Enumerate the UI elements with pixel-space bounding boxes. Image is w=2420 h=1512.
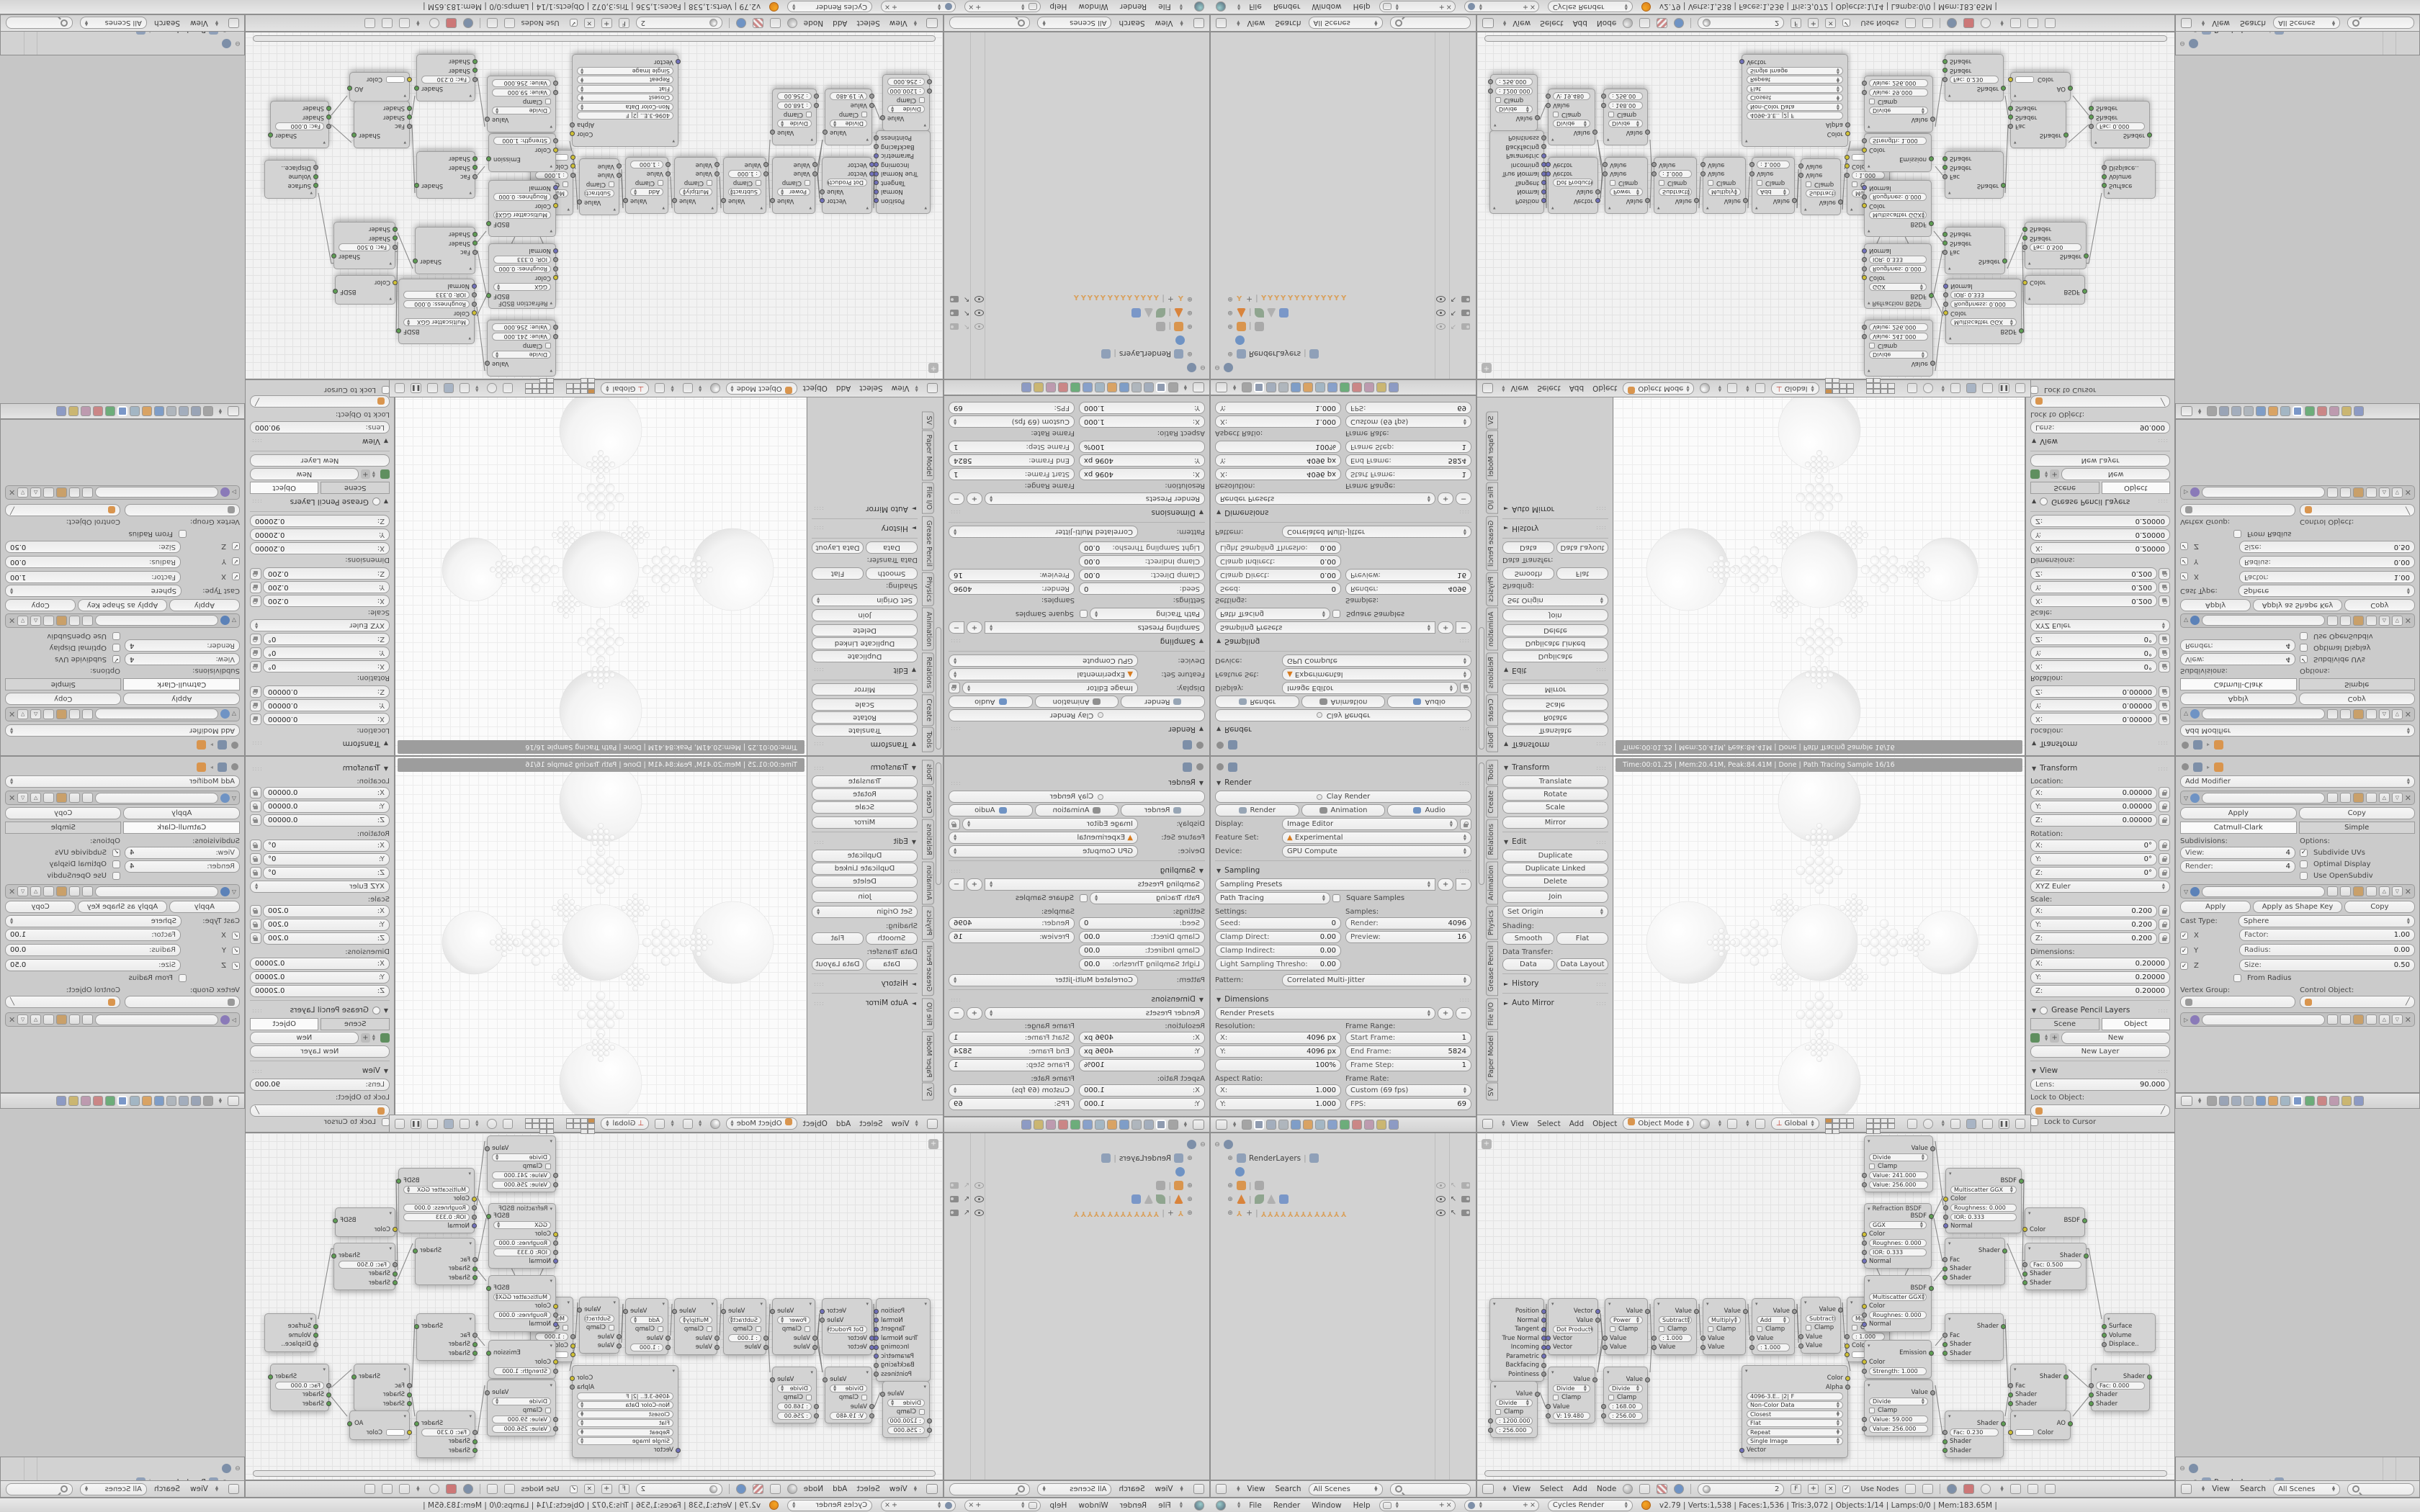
node-refraction-bsdf[interactable]: ▾Refraction BSDFBSDFGGXColorRoughnes: 0.…	[1864, 243, 1932, 309]
menu-item-view[interactable]: View	[892, 384, 910, 393]
node-refraction-bsdf[interactable]: ▾Refraction BSDFBSDFGGXColorRoughnes: 0.…	[488, 243, 556, 309]
properties-tab-material-icon[interactable]	[2317, 406, 2327, 416]
clamp-checkbox[interactable]	[658, 180, 663, 186]
outliner-world-row[interactable]	[1214, 333, 1473, 347]
tool-shelf-tab-tools[interactable]: Tools	[922, 727, 934, 752]
outliner-object-row[interactable]: ⊕ | ↖	[1214, 1179, 1473, 1192]
section-history[interactable]: ►History::::	[1504, 977, 1607, 990]
properties-tab-constraints-icon[interactable]	[130, 406, 140, 416]
shader-type-icon[interactable]	[787, 18, 797, 28]
node-math-multiply[interactable]: ▾ValueMultiplyClampValueValue	[674, 158, 717, 215]
axis-y-checkbox[interactable]: ✓	[2180, 557, 2188, 565]
copy-button[interactable]: Copy	[5, 901, 76, 913]
node-dropdown[interactable]: Single Image	[1747, 67, 1843, 75]
world-icon[interactable]	[736, 1484, 746, 1494]
clamp-checkbox[interactable]	[545, 1408, 551, 1413]
outliner-display-dropdown[interactable]: All Scenes	[1037, 17, 1111, 30]
fractal-sphere-object[interactable]	[1613, 397, 2025, 755]
eye-toggle-icon[interactable]	[69, 709, 80, 719]
screen-icon[interactable]	[395, 384, 405, 394]
render-visibility-icon[interactable]	[1461, 1210, 1470, 1216]
empty-object-icon[interactable]: Y	[1327, 295, 1332, 303]
properties-tab-scene-icon[interactable]	[166, 406, 176, 416]
outliner-editor-icon[interactable]	[228, 1484, 239, 1494]
node-mix-shader[interactable]: ▾ShaderFac: 0.000ShaderShader	[270, 1364, 329, 1411]
properties-tab-particles-icon[interactable]	[1376, 382, 1386, 392]
node-math-subtract[interactable]: ▾ValueSubtractClampValueValue	[1801, 159, 1841, 216]
node-editor-canvas[interactable]: ▾PositionNormalTangentTrue NormalIncomin…	[1477, 1133, 2174, 1480]
empty-object-icon[interactable]: Y	[1288, 1210, 1293, 1218]
node-geometry[interactable]: ▾PositionNormalTangentTrue NormalIncomin…	[876, 1298, 931, 1382]
blender-menu-icon[interactable]	[1216, 2, 1226, 12]
outliner-renderlayers-row[interactable]: ⊕ RenderLayers|	[1214, 347, 1473, 361]
gpencil-new-button[interactable]: New	[2061, 1032, 2170, 1044]
delete-button[interactable]: Delete	[1502, 876, 1608, 888]
lock-icon[interactable]	[250, 905, 261, 917]
menu-item-file[interactable]: File	[1249, 1501, 1262, 1510]
selectable-icon[interactable]: ↖	[964, 1209, 969, 1217]
value-field[interactable]: End Frame:5824	[1345, 1045, 1471, 1058]
viewport-3d[interactable]: Time:00:01.25 | Mem:20.41M, Peak:84.41M …	[1613, 756, 2025, 1133]
lock-icon[interactable]	[250, 919, 261, 930]
node-math-divide[interactable]: ▾ValueDivideClamp: 168.00: 256.00	[1603, 89, 1648, 146]
shade-smooth-button[interactable]: Smooth	[866, 932, 918, 945]
tool-shelf-tab-grease-pencil[interactable]: Grease Pencil	[922, 516, 934, 571]
scrollbar[interactable]	[936, 627, 941, 750]
editmode-toggle-icon[interactable]	[2353, 886, 2364, 896]
square-samples-checkbox[interactable]	[1080, 610, 1088, 618]
viewport-canvas[interactable]	[395, 380, 807, 755]
value-field[interactable]: Y:0°	[263, 853, 390, 865]
screen-icon[interactable]	[2015, 1119, 2025, 1129]
lock-to-object-field[interactable]: ╱	[250, 1104, 390, 1117]
node-math-divide[interactable]: ▾ValueDivideClamp: 168.00: 256.00	[772, 1367, 817, 1423]
node-dropdown[interactable]: Subtract	[584, 189, 614, 197]
clamp-checkbox[interactable]	[861, 112, 867, 117]
shade-flat-button[interactable]: Flat	[1556, 932, 1608, 945]
properties-tab-world-icon[interactable]	[1119, 1120, 1129, 1130]
outliner-renderlayers-row[interactable]: ⊕ RenderLayers|	[947, 347, 1206, 361]
texture-icon[interactable]	[753, 1484, 763, 1494]
add-icon[interactable]: +	[2050, 1033, 2059, 1043]
value-field[interactable]: X:0°	[2030, 660, 2157, 672]
layers-widget-secondary[interactable]	[1866, 383, 1901, 395]
unlink-datablock-icon[interactable]: ×	[1825, 1484, 1836, 1494]
world-icon[interactable]	[736, 18, 746, 28]
menu-item-select[interactable]: Select	[1537, 384, 1560, 393]
node-dropdown[interactable]: Multiscatter GGX	[1869, 211, 1927, 219]
section-grease-pencil-layers[interactable]: ▼Grease Pencil Layers::::	[251, 495, 388, 508]
properties-tab-scene-icon[interactable]	[166, 1096, 176, 1106]
clay-render-button[interactable]: Clay Render	[949, 709, 1205, 721]
clamp-checkbox[interactable]	[1869, 99, 1875, 104]
delete-modifier-icon[interactable]: ✕	[9, 710, 15, 719]
set-origin-dropdown[interactable]: Set Origin	[812, 594, 918, 606]
node-editor[interactable]: ▾PositionNormalTangentTrue NormalIncomin…	[1476, 32, 2175, 379]
properties-tab-editor-menu-icon[interactable]	[203, 406, 213, 416]
value-field[interactable]: Z:0.200	[263, 567, 390, 580]
backdrop-icon[interactable]	[446, 1484, 457, 1494]
color-swatch[interactable]	[2015, 76, 2034, 83]
add-modifier-dropdown[interactable]: Add Modifier	[2180, 775, 2415, 788]
fake-user-button[interactable]: F	[619, 1484, 629, 1494]
layers-widget[interactable]	[560, 1118, 595, 1130]
menu-item-window[interactable]: Window	[1078, 1501, 1108, 1510]
cast-type-dropdown[interactable]: Sphere	[2238, 915, 2415, 927]
pin-icon[interactable]	[2182, 763, 2189, 770]
node-dropdown[interactable]: Divide	[1553, 1385, 1590, 1392]
node-value-field[interactable]: Fac: 0.000	[275, 122, 324, 130]
properties-tab-material-icon[interactable]	[93, 406, 103, 416]
eyedropper-icon[interactable]: ╱	[255, 1105, 259, 1116]
join-button[interactable]: Join	[1502, 891, 1608, 903]
node-math-subtract[interactable]: ▾ValueSubtractClampValueValue	[579, 159, 619, 216]
value-field[interactable]: Seed:0	[1215, 917, 1341, 930]
menu-item-view[interactable]: View	[889, 1485, 907, 1493]
square-samples-checkbox[interactable]	[1332, 610, 1340, 618]
node-glossy-bsdf[interactable]: ▾BSDFMultiscatter GGXColorRoughnes: 0.00…	[1864, 1275, 1932, 1332]
node-dropdown[interactable]: Non-Color Data	[1747, 103, 1843, 111]
value-field[interactable]: X:0.200	[263, 905, 390, 917]
node-dropdown[interactable]: Dot Product	[827, 179, 867, 186]
properties-tab-world-icon[interactable]	[1291, 1120, 1301, 1130]
node-dropdown[interactable]: GGX	[1869, 283, 1927, 291]
add-preset-button[interactable]: +	[1438, 878, 1453, 891]
node-geometry[interactable]: ▾PositionNormalTangentTrue NormalIncomin…	[876, 130, 931, 214]
eye-toggle-icon[interactable]	[2340, 616, 2351, 626]
render-visibility-icon[interactable]	[1461, 310, 1470, 316]
fake-user-button[interactable]: F	[619, 18, 629, 28]
clamp-checkbox[interactable]	[1608, 1395, 1614, 1400]
world-background-icon[interactable]	[1947, 1484, 1957, 1494]
section-auto-mirror[interactable]: ►Auto Mirror::::	[813, 996, 916, 1009]
pencil-icon[interactable]	[2030, 1033, 2040, 1043]
node-mix-shader[interactable]: ▾ShaderFacShaderShader	[1945, 151, 2004, 199]
section-render[interactable]: ▼Render::::	[950, 723, 1204, 736]
value-field[interactable]: Render:4096	[1345, 917, 1471, 930]
value-field[interactable]: End Frame:5824	[1345, 454, 1471, 467]
node-value-field[interactable]: IOR: 0.333	[493, 1248, 551, 1256]
properties-tab-modifiers-icon[interactable]	[2293, 406, 2303, 416]
move-down-icon[interactable]: ▽	[2392, 886, 2403, 896]
properties-tab-constraints-icon[interactable]	[2280, 1096, 2290, 1106]
value-field[interactable]: Lens:90.000	[250, 421, 390, 433]
node-dropdown[interactable]: Power	[1610, 1316, 1643, 1324]
apply-as-shape-key-button[interactable]: Apply as Shape Key	[78, 901, 167, 913]
copy-button[interactable]: Copy	[5, 599, 76, 611]
data-button[interactable]: Data	[866, 541, 918, 554]
empty-object-icon[interactable]: Y	[1134, 295, 1139, 303]
node-image-texture[interactable]: ▾ColorAlpha4096-3.E.. |2| FNon-Color Dat…	[1742, 55, 1848, 148]
image-file-field[interactable]: 4096-3.E.. |2| F	[1747, 112, 1843, 120]
properties-tab-object-data-icon[interactable]	[1070, 382, 1080, 392]
node-value-field[interactable]: : 1200.000	[887, 1417, 925, 1425]
proportional-edit-icon[interactable]	[1950, 1119, 1960, 1129]
section-transform[interactable]: ▼Transform::::	[1504, 761, 1607, 774]
editmode-toggle-icon[interactable]	[56, 886, 67, 896]
node-dropdown[interactable]: Divide	[1869, 351, 1928, 359]
properties-tab-particles-icon[interactable]	[68, 406, 79, 416]
outliner-display-dropdown[interactable]: All Scenes	[80, 17, 147, 30]
node-math-divide[interactable]: ▾ValueDivideClampValueV: 19.480	[825, 89, 872, 146]
clamp-checkbox[interactable]	[1806, 1325, 1811, 1331]
empty-object-icon[interactable]: Y	[1127, 1210, 1132, 1218]
empty-object-icon[interactable]: Y	[1294, 1210, 1299, 1218]
node-value-field[interactable]: Roughnes: 0.000	[1869, 265, 1927, 273]
axis-z-checkbox[interactable]: ✓	[2180, 962, 2188, 970]
section-auto-mirror[interactable]: ►Auto Mirror::::	[813, 503, 916, 516]
value-field[interactable]: Z:0.200	[2030, 567, 2157, 580]
node-emission[interactable]: ▾EmissionColorStrength: 1.000	[488, 1340, 556, 1379]
value-field[interactable]: Light Sampling Thresho:0.00	[1215, 541, 1341, 554]
gpencil-object-tab[interactable]: Object	[2102, 1018, 2171, 1030]
rotate-button[interactable]: Rotate	[812, 788, 918, 801]
image-file-field[interactable]: 4096-3.E.. |2| F	[577, 1392, 673, 1400]
add-icon[interactable]: +	[1439, 3, 1445, 11]
node-mix-shader[interactable]: ▾ShaderFacShaderShader	[1945, 227, 2005, 274]
color-swatch[interactable]	[2015, 1429, 2034, 1436]
value-field[interactable]: Seed:0	[1215, 582, 1341, 595]
properties-tab-render-layers-icon[interactable]	[1266, 382, 1276, 392]
catmull-clark-tab[interactable]: Catmull-Clark	[2180, 822, 2297, 834]
node-value-field[interactable]: : 1.000	[535, 171, 568, 179]
properties-tab-editor-menu-icon[interactable]	[1242, 1120, 1252, 1130]
node-value-field[interactable]: : 1200.000	[1495, 1417, 1533, 1425]
node-value-field[interactable]: Roughness: 0.000	[403, 1204, 470, 1212]
node-value-field[interactable]: : 1.000	[1757, 1344, 1790, 1351]
value-field[interactable]: Factor:1.00	[2239, 571, 2415, 583]
scene-field[interactable]: +×	[1464, 1500, 1539, 1511]
gpencil-scene-tab[interactable]: Scene	[321, 1018, 390, 1030]
node-editor-icon[interactable]	[1482, 1484, 1494, 1494]
node-value-field[interactable]: V: 19.480	[830, 1412, 867, 1420]
catmull-clark-tab[interactable]: Catmull-Clark	[2180, 678, 2297, 690]
node-math-divide[interactable]: ▾ValueDivideClamp: 1200.000: 256.000	[882, 1381, 930, 1438]
node-math-add[interactable]: ▾ValueAddClampValue: 1.000	[1752, 158, 1795, 215]
tool-shelf-tab-sv[interactable]: SV	[922, 1083, 934, 1101]
use-nodes-checkbox[interactable]: ✓	[570, 1485, 578, 1493]
section-edit[interactable]: ▼Edit::::	[1504, 664, 1607, 677]
lock-icon[interactable]	[503, 1119, 513, 1129]
node-mix-shader[interactable]: ▾ShaderFac: 0.230ShaderShader	[1945, 54, 2004, 102]
section-transform[interactable]: ▼Transform::::	[813, 761, 916, 774]
node-dropdown[interactable]: Flat	[1747, 85, 1843, 93]
value-field[interactable]: End Frame:5824	[949, 1045, 1075, 1058]
axis-x-checkbox[interactable]: ✓	[232, 572, 240, 580]
properties-tab-physics-icon[interactable]	[2354, 406, 2364, 416]
add-icon[interactable]: +	[361, 1033, 370, 1043]
clamp-checkbox[interactable]	[1757, 180, 1762, 186]
value-field[interactable]: Radius:0.00	[5, 944, 181, 956]
menu-item-add[interactable]: Add	[1569, 1120, 1584, 1128]
node-value-field[interactable]: Value: 256.000	[1869, 79, 1928, 87]
node-value-field[interactable]: : 168.00	[777, 1403, 812, 1410]
lock-interface-icon[interactable]	[1460, 819, 1471, 830]
value-field[interactable]: X:0.20000	[2030, 542, 2170, 554]
lock-icon[interactable]	[2159, 700, 2170, 711]
node-dropdown[interactable]: Dot Product	[827, 1326, 867, 1333]
properties-tab-render-layers-icon[interactable]	[2231, 1096, 2241, 1106]
paste-node-icon[interactable]	[364, 1484, 375, 1494]
backdrop-icon[interactable]	[1963, 18, 1974, 28]
add-icon[interactable]: +	[975, 3, 981, 11]
menu-item-add[interactable]: Add	[1573, 19, 1587, 27]
value-field[interactable]: Size:0.50	[5, 959, 181, 971]
move-down-icon[interactable]: ▽	[2392, 1014, 2403, 1025]
unlink-datablock-icon[interactable]: ×	[584, 18, 595, 28]
clamp-checkbox[interactable]	[609, 181, 614, 187]
node-dropdown[interactable]: Repeat	[1747, 1428, 1843, 1436]
value-field[interactable]: Factor:1.00	[2239, 929, 2415, 941]
menu-item-help[interactable]: Help	[1049, 1501, 1067, 1510]
node-mix-shader[interactable]: ▾ShaderFacShaderShader	[416, 1313, 475, 1361]
node-value-field[interactable]: Roughnes: 0.000	[493, 265, 551, 273]
lock-icon[interactable]	[250, 932, 261, 944]
node-value-field[interactable]: : 1.000	[728, 170, 761, 178]
texture-icon[interactable]	[1657, 1484, 1667, 1494]
render-animation-icon[interactable]	[1982, 1119, 1992, 1129]
clamp-checkbox[interactable]	[756, 1326, 761, 1332]
shader-type-icon[interactable]	[787, 1484, 797, 1494]
hide-icon[interactable]	[1436, 1196, 1446, 1202]
image-file-field[interactable]: 4096-3.E.. |2| F	[1747, 1392, 1843, 1400]
outliner-search-field[interactable]	[949, 17, 1030, 30]
control-object-field[interactable]: ╱	[5, 504, 120, 516]
node-value-field[interactable]: Roughness: 0.000	[1950, 1204, 2017, 1212]
node-value-field[interactable]: Fac: 0.000	[2096, 1382, 2145, 1390]
properties-tab-constraints-icon[interactable]	[130, 1096, 140, 1106]
duplicate-button[interactable]: Duplicate	[1502, 650, 1608, 662]
fake-user-button[interactable]: F	[1791, 18, 1801, 28]
data-layout-button[interactable]: Data Layout	[1556, 958, 1608, 971]
eye-toggle-icon[interactable]	[69, 886, 80, 896]
display-dropdown[interactable]: Image Editor	[962, 818, 1138, 830]
value-field[interactable]: Y:0.00000	[263, 699, 390, 711]
menu-item-search[interactable]: Search	[1275, 1485, 1301, 1493]
lock-icon[interactable]	[2159, 932, 2170, 944]
color-swatch[interactable]	[386, 76, 405, 83]
node-glass-bsdf[interactable]: ▾BSDFMultiscatter GGXColorRoughness: 0.0…	[1945, 1168, 2022, 1233]
layers-widget-secondary[interactable]	[519, 1118, 554, 1130]
menu-item-view[interactable]: View	[1247, 19, 1265, 27]
layers-widget-secondary[interactable]	[1866, 1118, 1901, 1130]
cast-type-dropdown[interactable]: Sphere	[5, 585, 181, 597]
node-math-divide[interactable]: ▾ValueDivideClampValue: 241.000Value: 25…	[487, 1135, 556, 1192]
eyedropper-icon[interactable]: ╱	[2161, 396, 2165, 407]
properties-tab-render-camera-icon[interactable]	[2219, 406, 2229, 416]
node-value-field[interactable]: V: 19.480	[830, 92, 867, 100]
selectable-icon[interactable]: ↖	[964, 295, 969, 303]
move-up-icon[interactable]: △	[30, 886, 41, 896]
node-dropdown[interactable]: Divide	[1608, 1385, 1643, 1392]
modifier-name-field[interactable]	[2202, 886, 2325, 897]
empty-object-icon[interactable]: Y	[1141, 1210, 1146, 1218]
node-dropdown[interactable]: GGX	[493, 1221, 551, 1229]
node-math-divide[interactable]: ▾ValueDivideClamp: 168.00: 256.00	[1603, 1367, 1648, 1423]
menu-item-select[interactable]: Select	[1540, 1485, 1563, 1493]
audio-button[interactable]: Audio	[949, 696, 1033, 708]
set-origin-dropdown[interactable]: Set Origin	[1502, 594, 1608, 606]
node-value-field[interactable]: Roughnes: 0.000	[493, 1311, 551, 1319]
node-geometry[interactable]: ▾PositionNormalTangentTrue NormalIncomin…	[1489, 1298, 1544, 1382]
node-value-field[interactable]: Strength: 1.000	[493, 1367, 551, 1375]
value-field[interactable]: 100%	[1215, 441, 1341, 453]
clamp-checkbox[interactable]	[1553, 1395, 1559, 1400]
move-down-icon[interactable]: ▽	[17, 1014, 28, 1025]
value-field[interactable]: X:4096 px	[1215, 1032, 1341, 1044]
empty-object-icon[interactable]: Y	[1274, 295, 1279, 303]
apply-button[interactable]: Apply	[124, 807, 241, 819]
section-dimensions[interactable]: ▼Dimensions::::	[950, 993, 1204, 1006]
menu-item-view[interactable]: View	[892, 1120, 910, 1128]
node-value-field[interactable]: Value: 256.000	[1869, 1181, 1928, 1189]
value-field[interactable]: X:0.00000	[2030, 713, 2157, 725]
node-value-field[interactable]: Fac: 0.230	[1950, 76, 1999, 84]
pencil-icon[interactable]	[2030, 469, 2040, 479]
editmode-toggle-icon[interactable]	[56, 616, 67, 626]
node-dropdown[interactable]: Divide	[777, 120, 812, 127]
menu-item-search[interactable]: Search	[154, 1485, 180, 1493]
render-button[interactable]: Render	[1215, 696, 1299, 708]
value-field[interactable]: Clamp Indirect:0.00	[1215, 555, 1341, 567]
value-field[interactable]: Render:4096	[949, 917, 1075, 930]
value-field[interactable]: Lens:90.000	[250, 1079, 390, 1091]
node-math-subtract[interactable]: ▾ValueSubtractClamp: 1.000Value	[1654, 1298, 1697, 1355]
tool-shelf-tab-relations[interactable]: Relations	[922, 652, 934, 693]
data-button[interactable]: Data	[1502, 958, 1554, 971]
blender-menu-icon[interactable]	[1194, 1500, 1204, 1511]
node-dropdown[interactable]: Power	[1610, 188, 1643, 196]
translate-button[interactable]: Translate	[812, 775, 918, 788]
animation-button[interactable]: Animation	[1301, 804, 1386, 816]
lock-icon[interactable]	[250, 634, 261, 645]
material-datablock-field[interactable]: 2	[636, 17, 722, 30]
modifier-name-field[interactable]	[2202, 616, 2325, 626]
properties-tab-object-icon[interactable]	[142, 406, 152, 416]
node-editor-icon[interactable]	[926, 1484, 938, 1494]
properties-tab-render-layers-icon[interactable]	[179, 1096, 189, 1106]
duplicate-button[interactable]: Duplicate	[1502, 850, 1608, 862]
properties-editor-icon[interactable]	[1193, 382, 1204, 392]
section-auto-mirror[interactable]: ►Auto Mirror::::	[1504, 503, 1607, 516]
scrollbar[interactable]	[936, 762, 941, 885]
properties-tab-object-data-icon[interactable]	[105, 1096, 115, 1106]
node-value-field[interactable]: Fac: 0.000	[2096, 122, 2145, 130]
properties-tab-object-icon[interactable]	[142, 1096, 152, 1106]
use-nodes-checkbox[interactable]: ✓	[1842, 1485, 1850, 1493]
clay-render-button[interactable]: Clay Render	[1215, 791, 1471, 803]
properties-tab-editor-menu-icon[interactable]	[2207, 406, 2217, 416]
node-math-subtract[interactable]: ▾ValueSubtractClamp: 1.000Value	[1654, 158, 1697, 215]
value-field[interactable]: Y:0.20000	[250, 971, 390, 984]
eyedropper-icon[interactable]: ╱	[2161, 1105, 2165, 1116]
pin-icon[interactable]	[1905, 1484, 1916, 1494]
lock-icon[interactable]	[250, 661, 261, 672]
outliner-search-field[interactable]	[6, 1483, 73, 1495]
node-transparent-bsdf[interactable]: ▾BSDFColor	[2025, 275, 2085, 305]
value-field[interactable]: Y:0°	[2030, 853, 2157, 865]
node-value-field[interactable]: Roughnes: 0.000	[1869, 193, 1927, 201]
value-field[interactable]: Size:0.50	[2239, 959, 2415, 971]
tool-shelf-tab-animation[interactable]: Animation	[922, 608, 934, 651]
outliner-renderlayers-row[interactable]: ⊕ RenderLayers|	[947, 1151, 1206, 1165]
tool-shelf-tab-create[interactable]: Create	[922, 786, 934, 818]
node-math-divide[interactable]: ▾ValueDivideClamp: 1200.000: 256.000	[1490, 75, 1538, 132]
tool-shelf-tab-physics[interactable]: Physics	[1486, 906, 1498, 940]
shader-type-icon[interactable]	[1623, 18, 1633, 28]
menu-item-search[interactable]: Search	[154, 19, 180, 27]
node-math-divide[interactable]: ▾ValueDivideClampValue: 59.000Value: 256…	[1864, 1380, 1933, 1436]
